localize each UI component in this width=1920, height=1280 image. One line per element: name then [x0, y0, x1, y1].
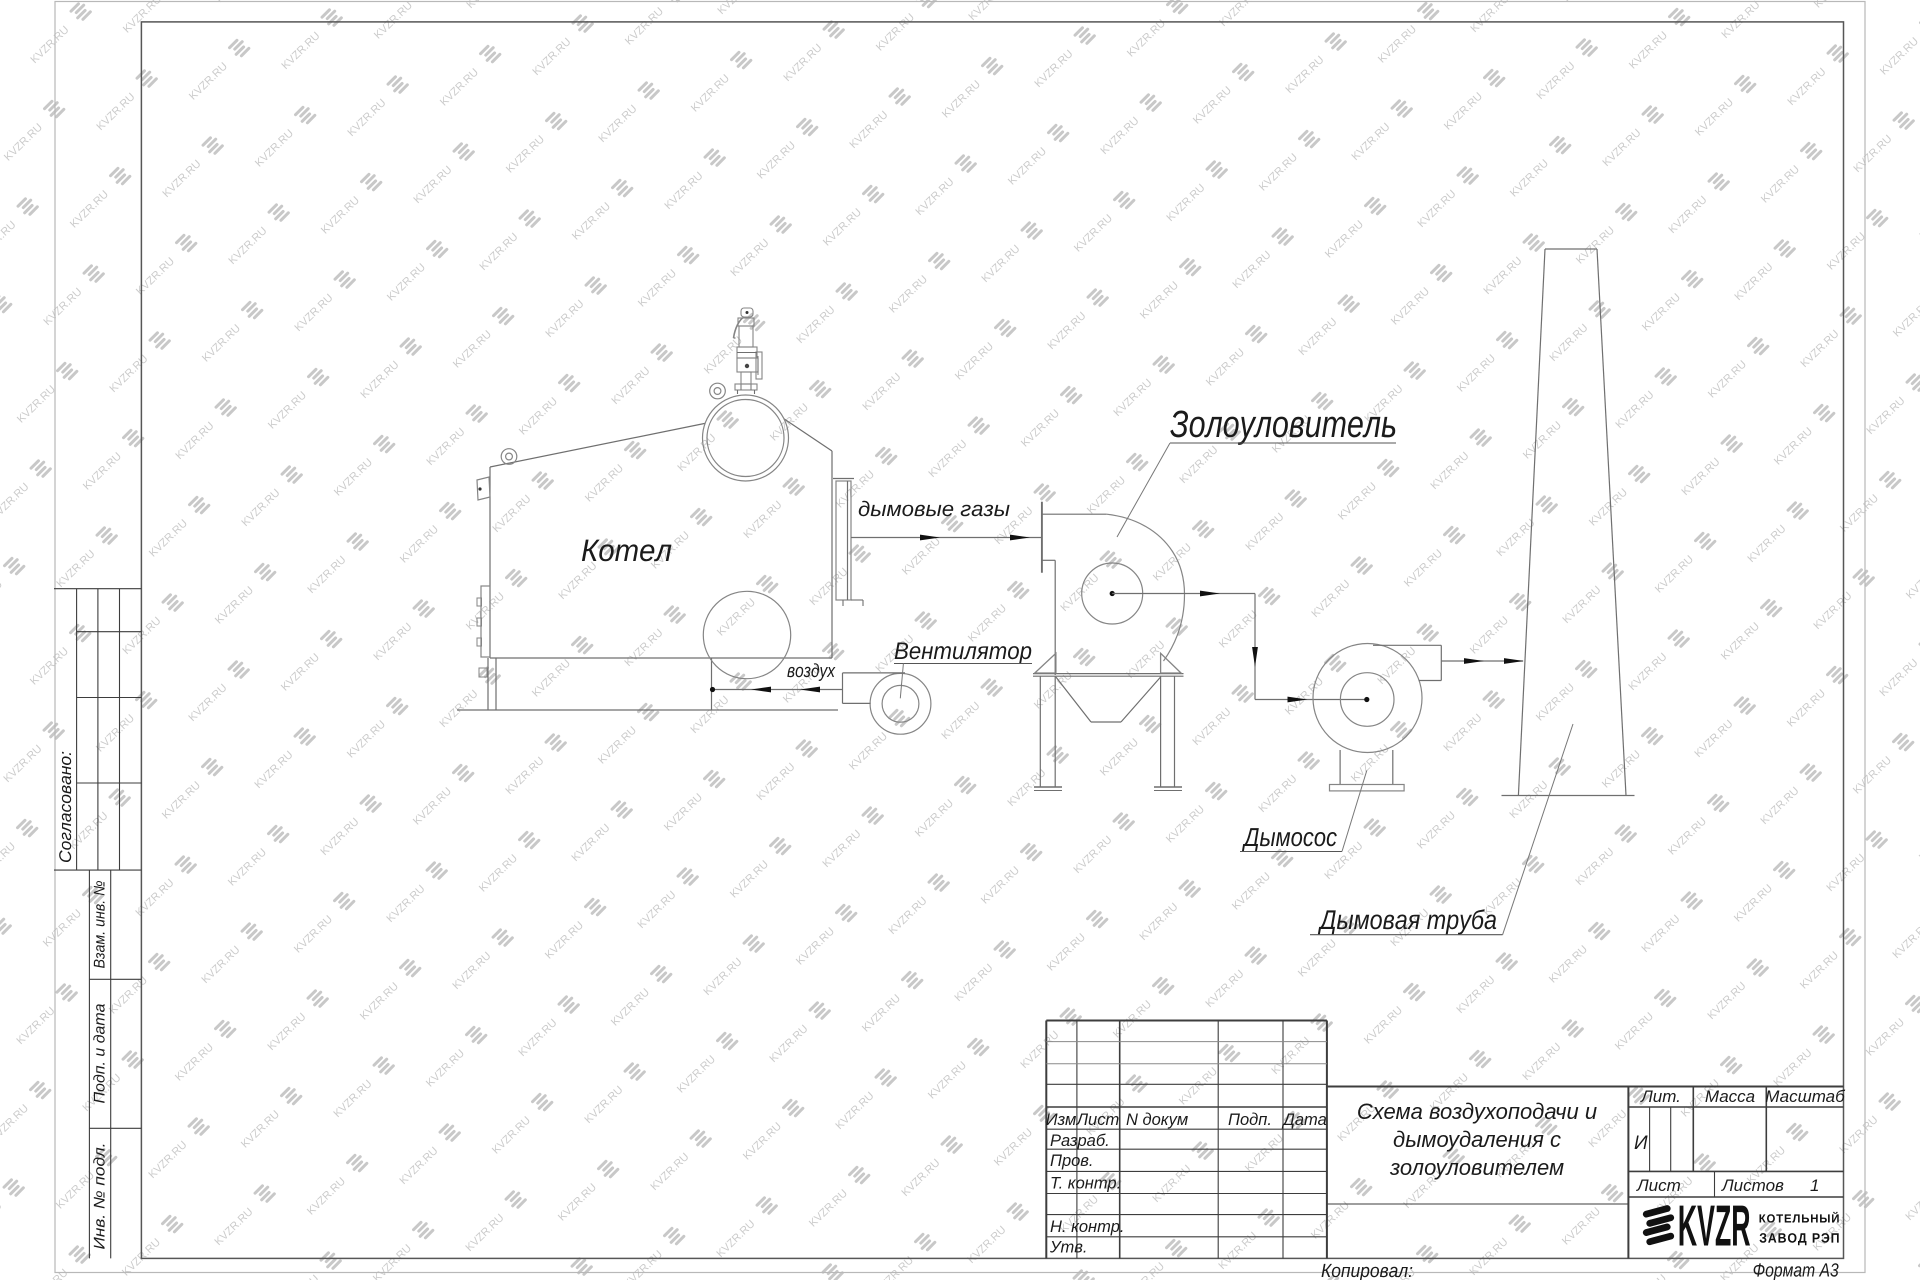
svg-text:Масса: Масса [1705, 1087, 1755, 1106]
svg-text:дымоудаления с: дымоудаления с [1393, 1127, 1561, 1152]
svg-text:Лист: Лист [1076, 1111, 1119, 1129]
svg-text:1: 1 [1810, 1176, 1819, 1195]
svg-text:Изм: Изм [1046, 1111, 1077, 1129]
svg-text:Схема воздухоподачи и: Схема воздухоподачи и [1357, 1099, 1597, 1124]
svg-text:Н. контр.: Н. контр. [1050, 1218, 1124, 1236]
svg-text:Пров.: Пров. [1050, 1152, 1094, 1170]
svg-text:Т. контр.: Т. контр. [1050, 1175, 1121, 1193]
svg-text:Лист: Лист [1636, 1176, 1681, 1195]
svg-text:N докум: N докум [1126, 1111, 1188, 1129]
svg-text:Подп.: Подп. [1228, 1111, 1272, 1129]
svg-text:И: И [1634, 1133, 1648, 1154]
svg-text:Листов: Листов [1721, 1176, 1784, 1195]
svg-text:Дата: Дата [1281, 1111, 1327, 1129]
svg-text:Лит.: Лит. [1640, 1087, 1681, 1106]
svg-text:Утв.: Утв. [1049, 1239, 1088, 1257]
svg-text:Разраб.: Разраб. [1050, 1132, 1110, 1150]
svg-text:Масштаб: Масштаб [1765, 1087, 1846, 1106]
svg-text:золоуловителем: золоуловителем [1389, 1155, 1564, 1180]
